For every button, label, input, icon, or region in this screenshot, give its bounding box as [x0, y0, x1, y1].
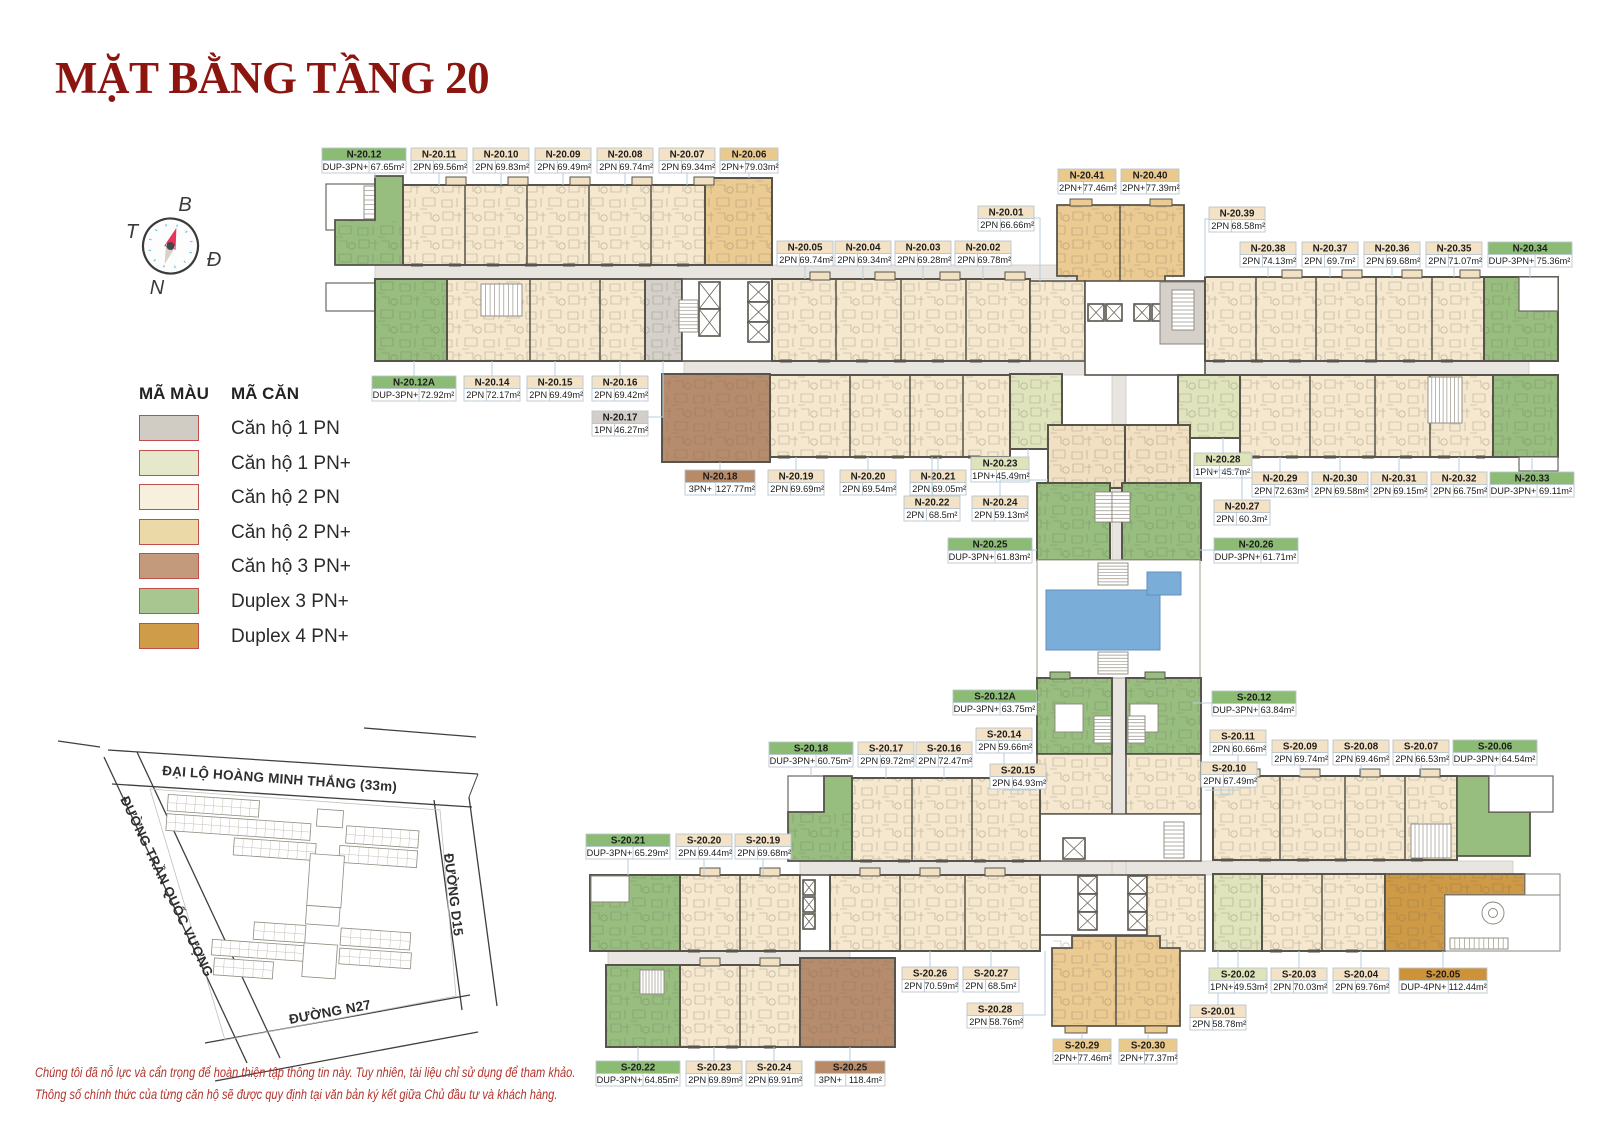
- svg-text:69.74m²: 69.74m²: [1294, 754, 1328, 764]
- svg-text:127.77m²: 127.77m²: [716, 484, 755, 494]
- svg-text:N-20.10: N-20.10: [484, 150, 519, 161]
- svg-text:N-20.07: N-20.07: [670, 150, 705, 161]
- svg-text:74.13m²: 74.13m²: [1262, 256, 1296, 266]
- svg-text:2PN: 2PN: [1203, 776, 1221, 786]
- svg-text:66.66m²: 66.66m²: [1000, 220, 1034, 230]
- svg-text:N-20.25: N-20.25: [973, 540, 1008, 551]
- svg-text:3PN+: 3PN+: [689, 484, 712, 494]
- svg-text:118.4m²: 118.4m²: [849, 1075, 882, 1085]
- svg-text:S-20.21: S-20.21: [611, 836, 646, 847]
- svg-text:2PN: 2PN: [978, 742, 996, 752]
- svg-text:46.27m²: 46.27m²: [614, 425, 648, 435]
- svg-text:64.54m²: 64.54m²: [1502, 754, 1536, 764]
- svg-text:69.05m²: 69.05m²: [932, 484, 966, 494]
- svg-text:2PN: 2PN: [1192, 1019, 1210, 1029]
- svg-text:N-20.35: N-20.35: [1437, 244, 1472, 255]
- svg-text:N-20.24: N-20.24: [983, 498, 1018, 509]
- svg-text:68.58m²: 68.58m²: [1231, 221, 1265, 231]
- svg-text:69.69m²: 69.69m²: [790, 484, 824, 494]
- svg-text:N-20.28: N-20.28: [1206, 455, 1241, 466]
- svg-text:DUP-3PN+: DUP-3PN+: [770, 756, 816, 766]
- svg-text:S-20.18: S-20.18: [794, 744, 829, 755]
- svg-text:2PN: 2PN: [466, 390, 484, 400]
- svg-text:69.42m²: 69.42m²: [614, 390, 648, 400]
- svg-text:2PN: 2PN: [1428, 256, 1446, 266]
- svg-text:2PN: 2PN: [957, 255, 975, 265]
- svg-text:69.34m²: 69.34m²: [857, 255, 891, 265]
- svg-text:N-20.39: N-20.39: [1220, 209, 1255, 220]
- svg-text:69.7m²: 69.7m²: [1327, 256, 1356, 266]
- svg-text:2PN: 2PN: [599, 162, 617, 172]
- svg-text:2PN: 2PN: [1274, 754, 1292, 764]
- svg-text:2PN: 2PN: [974, 510, 992, 520]
- svg-text:N-20.09: N-20.09: [546, 150, 581, 161]
- svg-text:69.83m²: 69.83m²: [495, 162, 529, 172]
- svg-text:2PN: 2PN: [413, 162, 431, 172]
- svg-text:S-20.22: S-20.22: [621, 1063, 656, 1074]
- svg-text:N-20.15: N-20.15: [538, 378, 573, 389]
- svg-text:2PN: 2PN: [1212, 744, 1230, 754]
- svg-text:2PN: 2PN: [1211, 221, 1229, 231]
- svg-text:2PN: 2PN: [918, 756, 936, 766]
- svg-text:75.36m²: 75.36m²: [1537, 256, 1571, 266]
- svg-text:N-20.29: N-20.29: [1263, 474, 1298, 485]
- svg-text:DUP-3PN+: DUP-3PN+: [1215, 552, 1261, 562]
- svg-text:ĐƯỜNG N27: ĐƯỜNG N27: [288, 997, 372, 1027]
- svg-text:2PN: 2PN: [1366, 256, 1384, 266]
- svg-text:S-20.11: S-20.11: [1221, 732, 1255, 743]
- svg-text:DUP-3PN+: DUP-3PN+: [323, 162, 369, 172]
- svg-text:N-20.41: N-20.41: [1070, 171, 1105, 182]
- svg-text:70.59m²: 70.59m²: [924, 981, 958, 991]
- svg-text:68.5m²: 68.5m²: [929, 510, 958, 520]
- svg-text:69.76m²: 69.76m²: [1355, 982, 1389, 992]
- svg-text:N-20.08: N-20.08: [608, 150, 643, 161]
- svg-text:63.75m²: 63.75m²: [1002, 704, 1036, 714]
- svg-text:69.46m²: 69.46m²: [1355, 754, 1389, 764]
- svg-text:1PN: 1PN: [594, 425, 612, 435]
- svg-text:69.11m²: 69.11m²: [1539, 486, 1572, 496]
- svg-text:72.17m²: 72.17m²: [486, 390, 520, 400]
- svg-text:N-20.12: N-20.12: [347, 150, 382, 161]
- svg-text:2PN: 2PN: [1433, 486, 1451, 496]
- svg-text:60.3m²: 60.3m²: [1239, 514, 1268, 524]
- svg-text:49.53m²: 49.53m²: [1234, 982, 1268, 992]
- svg-text:N-20.38: N-20.38: [1251, 244, 1286, 255]
- svg-text:2PN: 2PN: [980, 220, 998, 230]
- svg-text:2PN: 2PN: [737, 848, 755, 858]
- svg-text:N-20.14: N-20.14: [475, 378, 510, 389]
- svg-text:67.65m²: 67.65m²: [371, 162, 405, 172]
- svg-text:S-20.24: S-20.24: [757, 1063, 792, 1074]
- svg-text:2PN: 2PN: [1242, 256, 1260, 266]
- svg-text:S-20.12A: S-20.12A: [974, 692, 1015, 703]
- svg-text:N-20.33: N-20.33: [1515, 474, 1550, 485]
- svg-text:S-20.30: S-20.30: [1131, 1041, 1166, 1052]
- svg-text:N-20.17: N-20.17: [603, 413, 638, 424]
- svg-text:58.78m²: 58.78m²: [1212, 1019, 1246, 1029]
- svg-text:B: B: [178, 194, 191, 216]
- svg-text:63.84m²: 63.84m²: [1261, 705, 1295, 715]
- svg-text:S-20.17: S-20.17: [869, 744, 904, 755]
- svg-text:S-20.03: S-20.03: [1282, 970, 1317, 981]
- svg-text:2PN: 2PN: [1373, 486, 1391, 496]
- svg-text:2PN: 2PN: [1335, 754, 1353, 764]
- svg-text:N-20.20: N-20.20: [851, 472, 886, 483]
- svg-text:2PN: 2PN: [842, 484, 860, 494]
- svg-text:S-20.27: S-20.27: [974, 969, 1009, 980]
- svg-text:T: T: [126, 221, 140, 243]
- svg-text:2PN: 2PN: [594, 390, 612, 400]
- svg-text:2PN: 2PN: [688, 1075, 706, 1085]
- svg-text:58.76m²: 58.76m²: [989, 1017, 1023, 1027]
- svg-text:77.39m²: 77.39m²: [1146, 183, 1180, 193]
- svg-text:DUP-3PN+: DUP-3PN+: [1489, 256, 1535, 266]
- svg-text:N-20.30: N-20.30: [1323, 474, 1358, 485]
- svg-text:S-20.25: S-20.25: [833, 1063, 868, 1074]
- svg-text:S-20.26: S-20.26: [913, 969, 948, 980]
- svg-text:N: N: [150, 277, 165, 299]
- svg-text:N-20.26: N-20.26: [1239, 540, 1274, 551]
- svg-text:2PN: 2PN: [1273, 982, 1291, 992]
- svg-text:S-20.06: S-20.06: [1478, 742, 1513, 753]
- svg-text:69.56m²: 69.56m²: [433, 162, 467, 172]
- svg-text:64.93m²: 64.93m²: [1012, 778, 1046, 788]
- svg-text:2PN: 2PN: [837, 255, 855, 265]
- svg-text:N-20.27: N-20.27: [1225, 502, 1260, 513]
- svg-text:61.71m²: 61.71m²: [1263, 552, 1297, 562]
- svg-text:S-20.12: S-20.12: [1237, 693, 1272, 704]
- svg-text:N-20.05: N-20.05: [788, 243, 823, 254]
- svg-text:69.68m²: 69.68m²: [757, 848, 791, 858]
- svg-text:72.63m²: 72.63m²: [1274, 486, 1308, 496]
- svg-text:69.74m²: 69.74m²: [619, 162, 653, 172]
- svg-text:N-20.06: N-20.06: [732, 150, 767, 161]
- svg-text:61.83m²: 61.83m²: [997, 552, 1031, 562]
- svg-text:69.15m²: 69.15m²: [1393, 486, 1427, 496]
- svg-text:S-20.23: S-20.23: [697, 1063, 732, 1074]
- svg-text:2PN: 2PN: [1314, 486, 1332, 496]
- svg-text:77.46m²: 77.46m²: [1078, 1053, 1112, 1063]
- svg-text:69.78m²: 69.78m²: [977, 255, 1011, 265]
- svg-text:2PN: 2PN: [904, 981, 922, 991]
- svg-text:N-20.04: N-20.04: [846, 243, 881, 254]
- svg-text:72.92m²: 72.92m²: [421, 390, 455, 400]
- svg-text:S-20.29: S-20.29: [1065, 1041, 1100, 1052]
- svg-text:S-20.14: S-20.14: [987, 730, 1022, 741]
- svg-text:N-20.12A: N-20.12A: [393, 378, 435, 389]
- svg-text:S-20.20: S-20.20: [687, 836, 722, 847]
- svg-text:DUP-3PN+: DUP-3PN+: [1491, 486, 1537, 496]
- svg-text:77.46m²: 77.46m²: [1083, 183, 1117, 193]
- svg-text:2PN: 2PN: [965, 981, 983, 991]
- svg-text:S-20.15: S-20.15: [1001, 766, 1036, 777]
- svg-text:S-20.10: S-20.10: [1212, 764, 1247, 775]
- svg-text:69.74m²: 69.74m²: [799, 255, 833, 265]
- svg-text:N-20.19: N-20.19: [779, 472, 814, 483]
- svg-text:DUP-3PN+: DUP-3PN+: [587, 848, 633, 858]
- svg-text:69.89m²: 69.89m²: [708, 1075, 742, 1085]
- svg-text:2PN: 2PN: [537, 162, 555, 172]
- svg-text:2PN: 2PN: [779, 255, 797, 265]
- svg-text:2PN: 2PN: [992, 778, 1010, 788]
- svg-text:69.49m²: 69.49m²: [549, 390, 583, 400]
- svg-text:1PN+: 1PN+: [972, 471, 995, 481]
- svg-text:N-20.11: N-20.11: [422, 150, 457, 161]
- svg-text:69.54m²: 69.54m²: [862, 484, 896, 494]
- svg-text:2PN: 2PN: [969, 1017, 987, 1027]
- svg-text:2PN+: 2PN+: [1054, 1053, 1077, 1063]
- svg-text:2PN+: 2PN+: [1120, 1053, 1143, 1063]
- svg-text:72.47m²: 72.47m²: [938, 756, 972, 766]
- svg-text:70.03m²: 70.03m²: [1293, 982, 1327, 992]
- svg-text:112.44m²: 112.44m²: [1449, 982, 1487, 992]
- svg-text:2PN: 2PN: [661, 162, 679, 172]
- svg-text:ĐƯỜNG D15: ĐƯỜNG D15: [441, 853, 466, 938]
- svg-text:69.44m²: 69.44m²: [698, 848, 732, 858]
- svg-text:DUP-3PN+: DUP-3PN+: [597, 1075, 643, 1085]
- svg-text:N-20.23: N-20.23: [983, 459, 1018, 470]
- svg-text:S-20.28: S-20.28: [978, 1005, 1013, 1016]
- svg-text:S-20.16: S-20.16: [927, 744, 962, 755]
- svg-text:2PN: 2PN: [1335, 982, 1353, 992]
- svg-text:69.34m²: 69.34m²: [681, 162, 715, 172]
- svg-text:69.28m²: 69.28m²: [917, 255, 951, 265]
- svg-text:N-20.16: N-20.16: [603, 378, 638, 389]
- svg-text:2PN: 2PN: [1395, 754, 1413, 764]
- svg-text:N-20.22: N-20.22: [915, 498, 950, 509]
- svg-text:N-20.34: N-20.34: [1513, 244, 1548, 255]
- svg-text:66.53m²: 66.53m²: [1415, 754, 1449, 764]
- svg-text:2PN+: 2PN+: [1059, 183, 1082, 193]
- svg-text:S-20.05: S-20.05: [1426, 970, 1461, 981]
- svg-text:S-20.02: S-20.02: [1221, 970, 1256, 981]
- svg-text:DUP-3PN+: DUP-3PN+: [949, 552, 995, 562]
- svg-text:59.66m²: 59.66m²: [998, 742, 1032, 752]
- svg-text:N-20.31: N-20.31: [1382, 474, 1417, 485]
- svg-text:3PN+: 3PN+: [819, 1075, 842, 1085]
- svg-text:DUP-3PN+: DUP-3PN+: [1213, 705, 1259, 715]
- svg-text:65.29m²: 65.29m²: [635, 848, 669, 858]
- svg-text:2PN: 2PN: [529, 390, 547, 400]
- svg-text:S-20.19: S-20.19: [746, 836, 781, 847]
- svg-text:DUP-3PN+: DUP-3PN+: [373, 390, 419, 400]
- svg-text:2PN: 2PN: [897, 255, 915, 265]
- svg-text:S-20.08: S-20.08: [1344, 742, 1379, 753]
- svg-text:68.5m²: 68.5m²: [988, 981, 1017, 991]
- svg-text:1PN+: 1PN+: [1210, 982, 1233, 992]
- svg-text:N-20.01: N-20.01: [989, 208, 1024, 219]
- svg-text:N-20.21: N-20.21: [921, 472, 956, 483]
- svg-text:79.03m²: 79.03m²: [745, 162, 779, 172]
- svg-text:2PN: 2PN: [1216, 514, 1234, 524]
- svg-text:64.85m²: 64.85m²: [645, 1075, 679, 1085]
- svg-text:69.91m²: 69.91m²: [768, 1075, 802, 1085]
- svg-text:66.75m²: 66.75m²: [1453, 486, 1487, 496]
- svg-text:DUP-3PN+: DUP-3PN+: [1454, 754, 1500, 764]
- svg-text:69.49m²: 69.49m²: [557, 162, 591, 172]
- svg-text:N-20.40: N-20.40: [1133, 171, 1168, 182]
- svg-text:69.68m²: 69.68m²: [1386, 256, 1420, 266]
- svg-text:67.49m²: 67.49m²: [1223, 776, 1257, 786]
- svg-text:N-20.37: N-20.37: [1313, 244, 1348, 255]
- svg-text:2PN: 2PN: [770, 484, 788, 494]
- svg-text:2PN: 2PN: [912, 484, 930, 494]
- svg-text:69.72m²: 69.72m²: [880, 756, 914, 766]
- svg-text:2PN: 2PN: [1304, 256, 1322, 266]
- svg-text:N-20.03: N-20.03: [906, 243, 941, 254]
- svg-text:60.75m²: 60.75m²: [818, 756, 852, 766]
- svg-text:S-20.04: S-20.04: [1344, 970, 1379, 981]
- svg-text:N-20.18: N-20.18: [703, 472, 738, 483]
- svg-text:45.7m²: 45.7m²: [1221, 467, 1250, 477]
- svg-text:2PN+: 2PN+: [721, 162, 744, 172]
- svg-text:Đ: Đ: [207, 249, 221, 271]
- svg-text:S-20.09: S-20.09: [1283, 742, 1318, 753]
- svg-text:69.58m²: 69.58m²: [1334, 486, 1368, 496]
- svg-text:DUP-3PN+: DUP-3PN+: [954, 704, 1000, 714]
- svg-text:2PN: 2PN: [678, 848, 696, 858]
- svg-text:60.66m²: 60.66m²: [1232, 744, 1266, 754]
- svg-text:2PN: 2PN: [475, 162, 493, 172]
- svg-text:S-20.01: S-20.01: [1201, 1007, 1236, 1018]
- svg-text:59.13m²: 59.13m²: [994, 510, 1028, 520]
- svg-text:N-20.36: N-20.36: [1375, 244, 1410, 255]
- svg-text:2PN+: 2PN+: [1122, 183, 1145, 193]
- svg-text:2PN: 2PN: [748, 1075, 766, 1085]
- svg-text:1PN+: 1PN+: [1195, 467, 1218, 477]
- svg-text:DUP-4PN+: DUP-4PN+: [1401, 982, 1447, 992]
- svg-text:2PN: 2PN: [1254, 486, 1272, 496]
- svg-text:N-20.32: N-20.32: [1442, 474, 1477, 485]
- svg-text:N-20.02: N-20.02: [966, 243, 1001, 254]
- svg-text:77.37m²: 77.37m²: [1144, 1053, 1178, 1063]
- svg-text:71.07m²: 71.07m²: [1448, 256, 1482, 266]
- svg-text:2PN: 2PN: [860, 756, 878, 766]
- svg-text:2PN: 2PN: [906, 510, 924, 520]
- svg-text:S-20.07: S-20.07: [1404, 742, 1439, 753]
